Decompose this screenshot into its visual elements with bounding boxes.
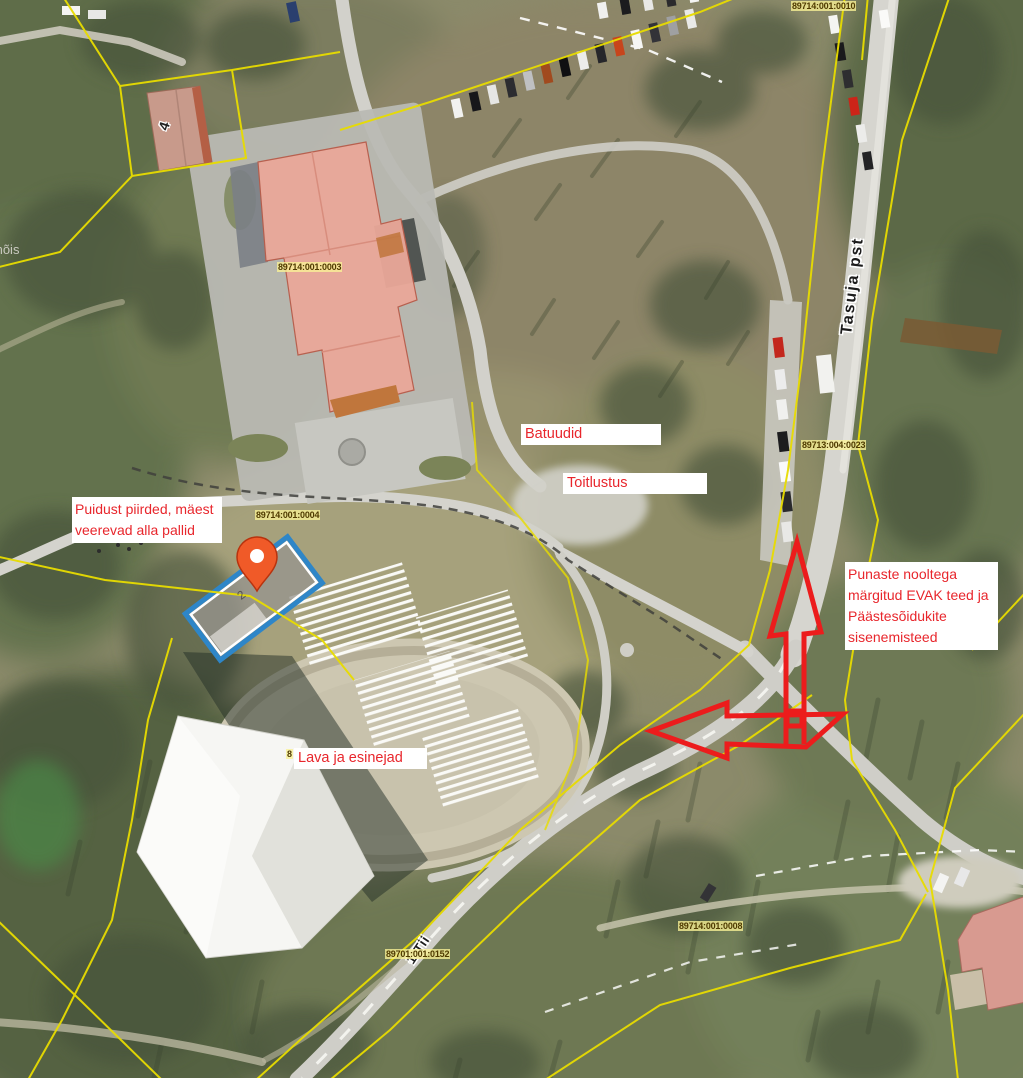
cadastral-label-0003: 89714:001:0003	[277, 262, 342, 272]
annotation-evak-teed: Punaste nooltega märgitud EVAK teed ja P…	[845, 562, 998, 650]
annotation-toitlustus: Toitlustus	[563, 473, 707, 494]
annotation-batuudid: Batuudid	[521, 424, 661, 445]
annotation-lava-ja-esinejad: Lava ja esinejad	[294, 748, 427, 769]
cadastral-label-0008: 89714:001:0008	[678, 921, 743, 931]
map-canvas[interactable]: 89714:001:0010 89714:001:0003 89714:001:…	[0, 0, 1023, 1078]
cadastral-label-0004: 89714:001:0004	[255, 510, 320, 520]
cadastral-label-0023: 89713:004:0023	[801, 440, 866, 450]
cadastral-label-0010: 89714:001:0010	[791, 1, 856, 11]
small-building-4	[147, 86, 212, 171]
annotation-puidust-piirded: Puidust piirded, mäest veerevad alla pal…	[72, 497, 222, 543]
monument-dot	[620, 643, 634, 657]
cadastral-label-0152: 89701:001:0152	[385, 949, 450, 959]
place-label-partial: mõis	[0, 242, 19, 257]
cadastral-label-partial: 8	[286, 749, 293, 759]
